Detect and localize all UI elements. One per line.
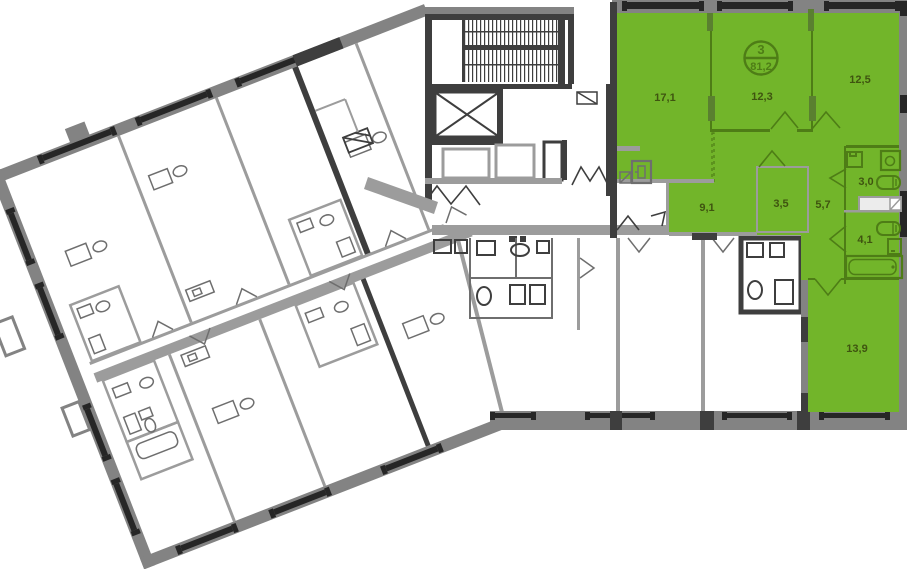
svg-text:12,3: 12,3 [751,91,772,103]
svg-text:9,1: 9,1 [699,202,714,214]
svg-text:13,9: 13,9 [846,343,867,355]
svg-text:12,5: 12,5 [849,74,870,86]
svg-text:4,1: 4,1 [857,234,872,246]
svg-text:3,5: 3,5 [773,198,788,210]
svg-text:81,2: 81,2 [750,61,771,73]
svg-text:17,1: 17,1 [654,92,675,104]
svg-text:3: 3 [757,42,764,57]
svg-text:3,0: 3,0 [858,176,873,188]
svg-text:5,7: 5,7 [815,199,830,211]
